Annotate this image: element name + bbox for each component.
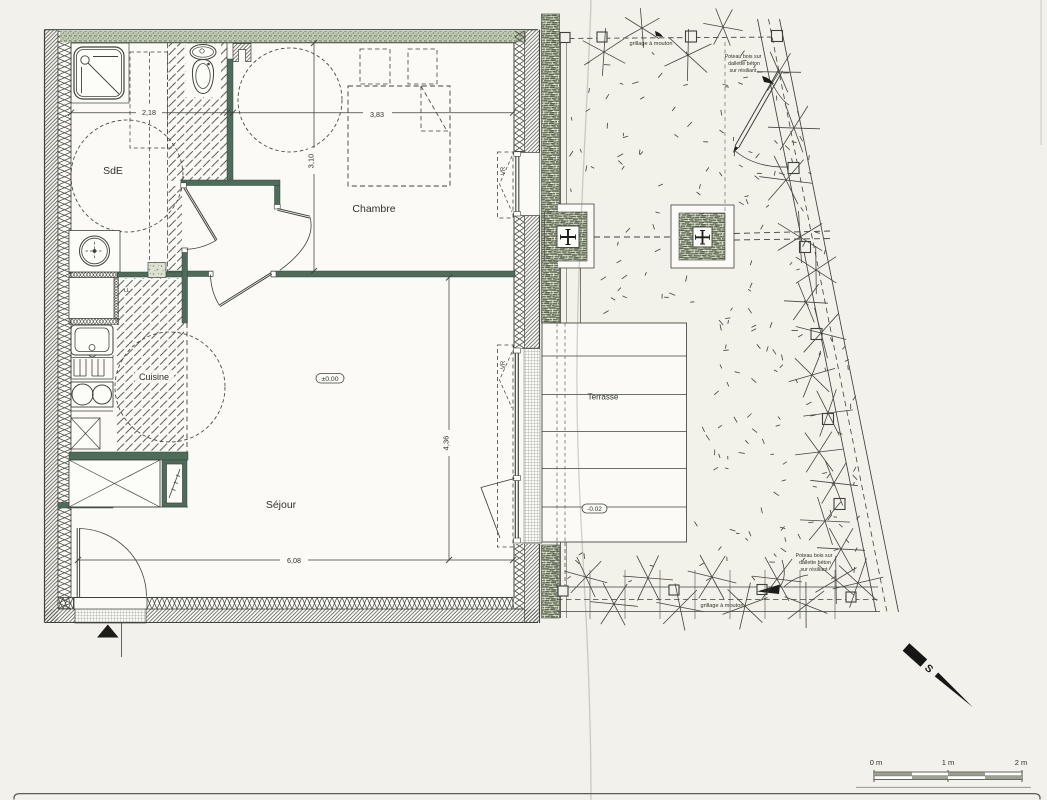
svg-text:3,10: 3,10 <box>307 154 316 169</box>
svg-text:-0.02: -0.02 <box>587 506 602 513</box>
svg-text:Séjour: Séjour <box>266 499 297 511</box>
svg-text:sur résiliant: sur résiliant <box>729 68 757 74</box>
svg-text:grillage à mouton: grillage à mouton <box>630 41 673 47</box>
svg-text:6,08: 6,08 <box>287 556 301 565</box>
svg-text:LL: LL <box>124 288 130 294</box>
svg-text:Terrasse: Terrasse <box>588 393 619 402</box>
svg-text:Poteau bois sur: Poteau bois sur <box>725 54 762 60</box>
svg-text:dallette béton: dallette béton <box>799 560 831 566</box>
svg-text:Chambre: Chambre <box>352 203 395 215</box>
svg-text:±0.00: ±0.00 <box>322 376 339 383</box>
svg-text:SdE: SdE <box>103 165 123 177</box>
svg-text:4,36: 4,36 <box>442 436 451 451</box>
svg-text:Poteau bois sur: Poteau bois sur <box>796 553 833 559</box>
svg-text:2,18: 2,18 <box>142 108 156 117</box>
svg-text:grillage à mouton: grillage à mouton <box>701 603 744 609</box>
svg-text:0 m: 0 m <box>870 758 883 767</box>
svg-text:3,83: 3,83 <box>370 110 384 119</box>
svg-text:1 m: 1 m <box>942 758 955 767</box>
svg-text:2 m: 2 m <box>1015 758 1028 767</box>
svg-text:Cuisine: Cuisine <box>139 372 169 382</box>
